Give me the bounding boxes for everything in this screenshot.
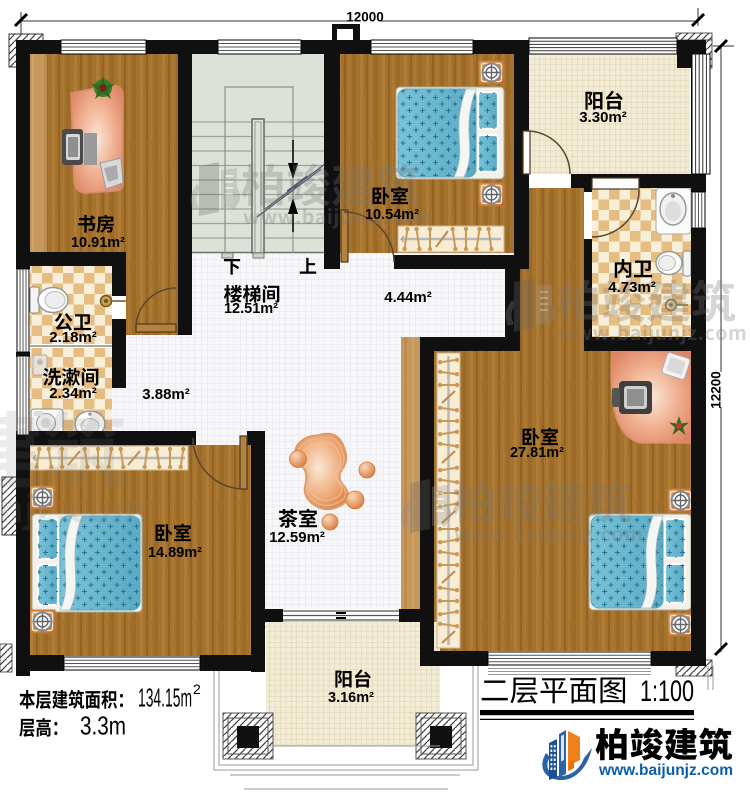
svg-text:134.15m: 134.15m — [138, 683, 192, 713]
svg-text:12.51m²: 12.51m² — [224, 301, 278, 317]
svg-text:12200: 12200 — [709, 371, 724, 409]
svg-text:2.18m²: 2.18m² — [49, 329, 97, 346]
svg-text:12.59m²: 12.59m² — [269, 529, 325, 546]
svg-text:2.34m²: 2.34m² — [49, 385, 97, 402]
svg-text:3.3m: 3.3m — [80, 711, 126, 741]
svg-text:4.73m²: 4.73m² — [608, 279, 656, 296]
svg-text:3.16m²: 3.16m² — [328, 690, 374, 706]
svg-text:4.44m²: 4.44m² — [384, 289, 432, 306]
svg-text:2: 2 — [193, 681, 201, 697]
svg-text:1:100: 1:100 — [640, 675, 694, 708]
svg-text:www.baijunjz.com: www.baijunjz.com — [598, 762, 733, 779]
svg-text:3.88m²: 3.88m² — [142, 386, 190, 403]
svg-text:14.89m²: 14.89m² — [148, 545, 202, 561]
svg-text:10.91m²: 10.91m² — [71, 235, 125, 251]
svg-text:10.54m²: 10.54m² — [365, 207, 419, 223]
svg-text:12000: 12000 — [346, 10, 384, 25]
svg-text:27.81m²: 27.81m² — [510, 445, 564, 461]
svg-text:3.30m²: 3.30m² — [579, 109, 627, 126]
